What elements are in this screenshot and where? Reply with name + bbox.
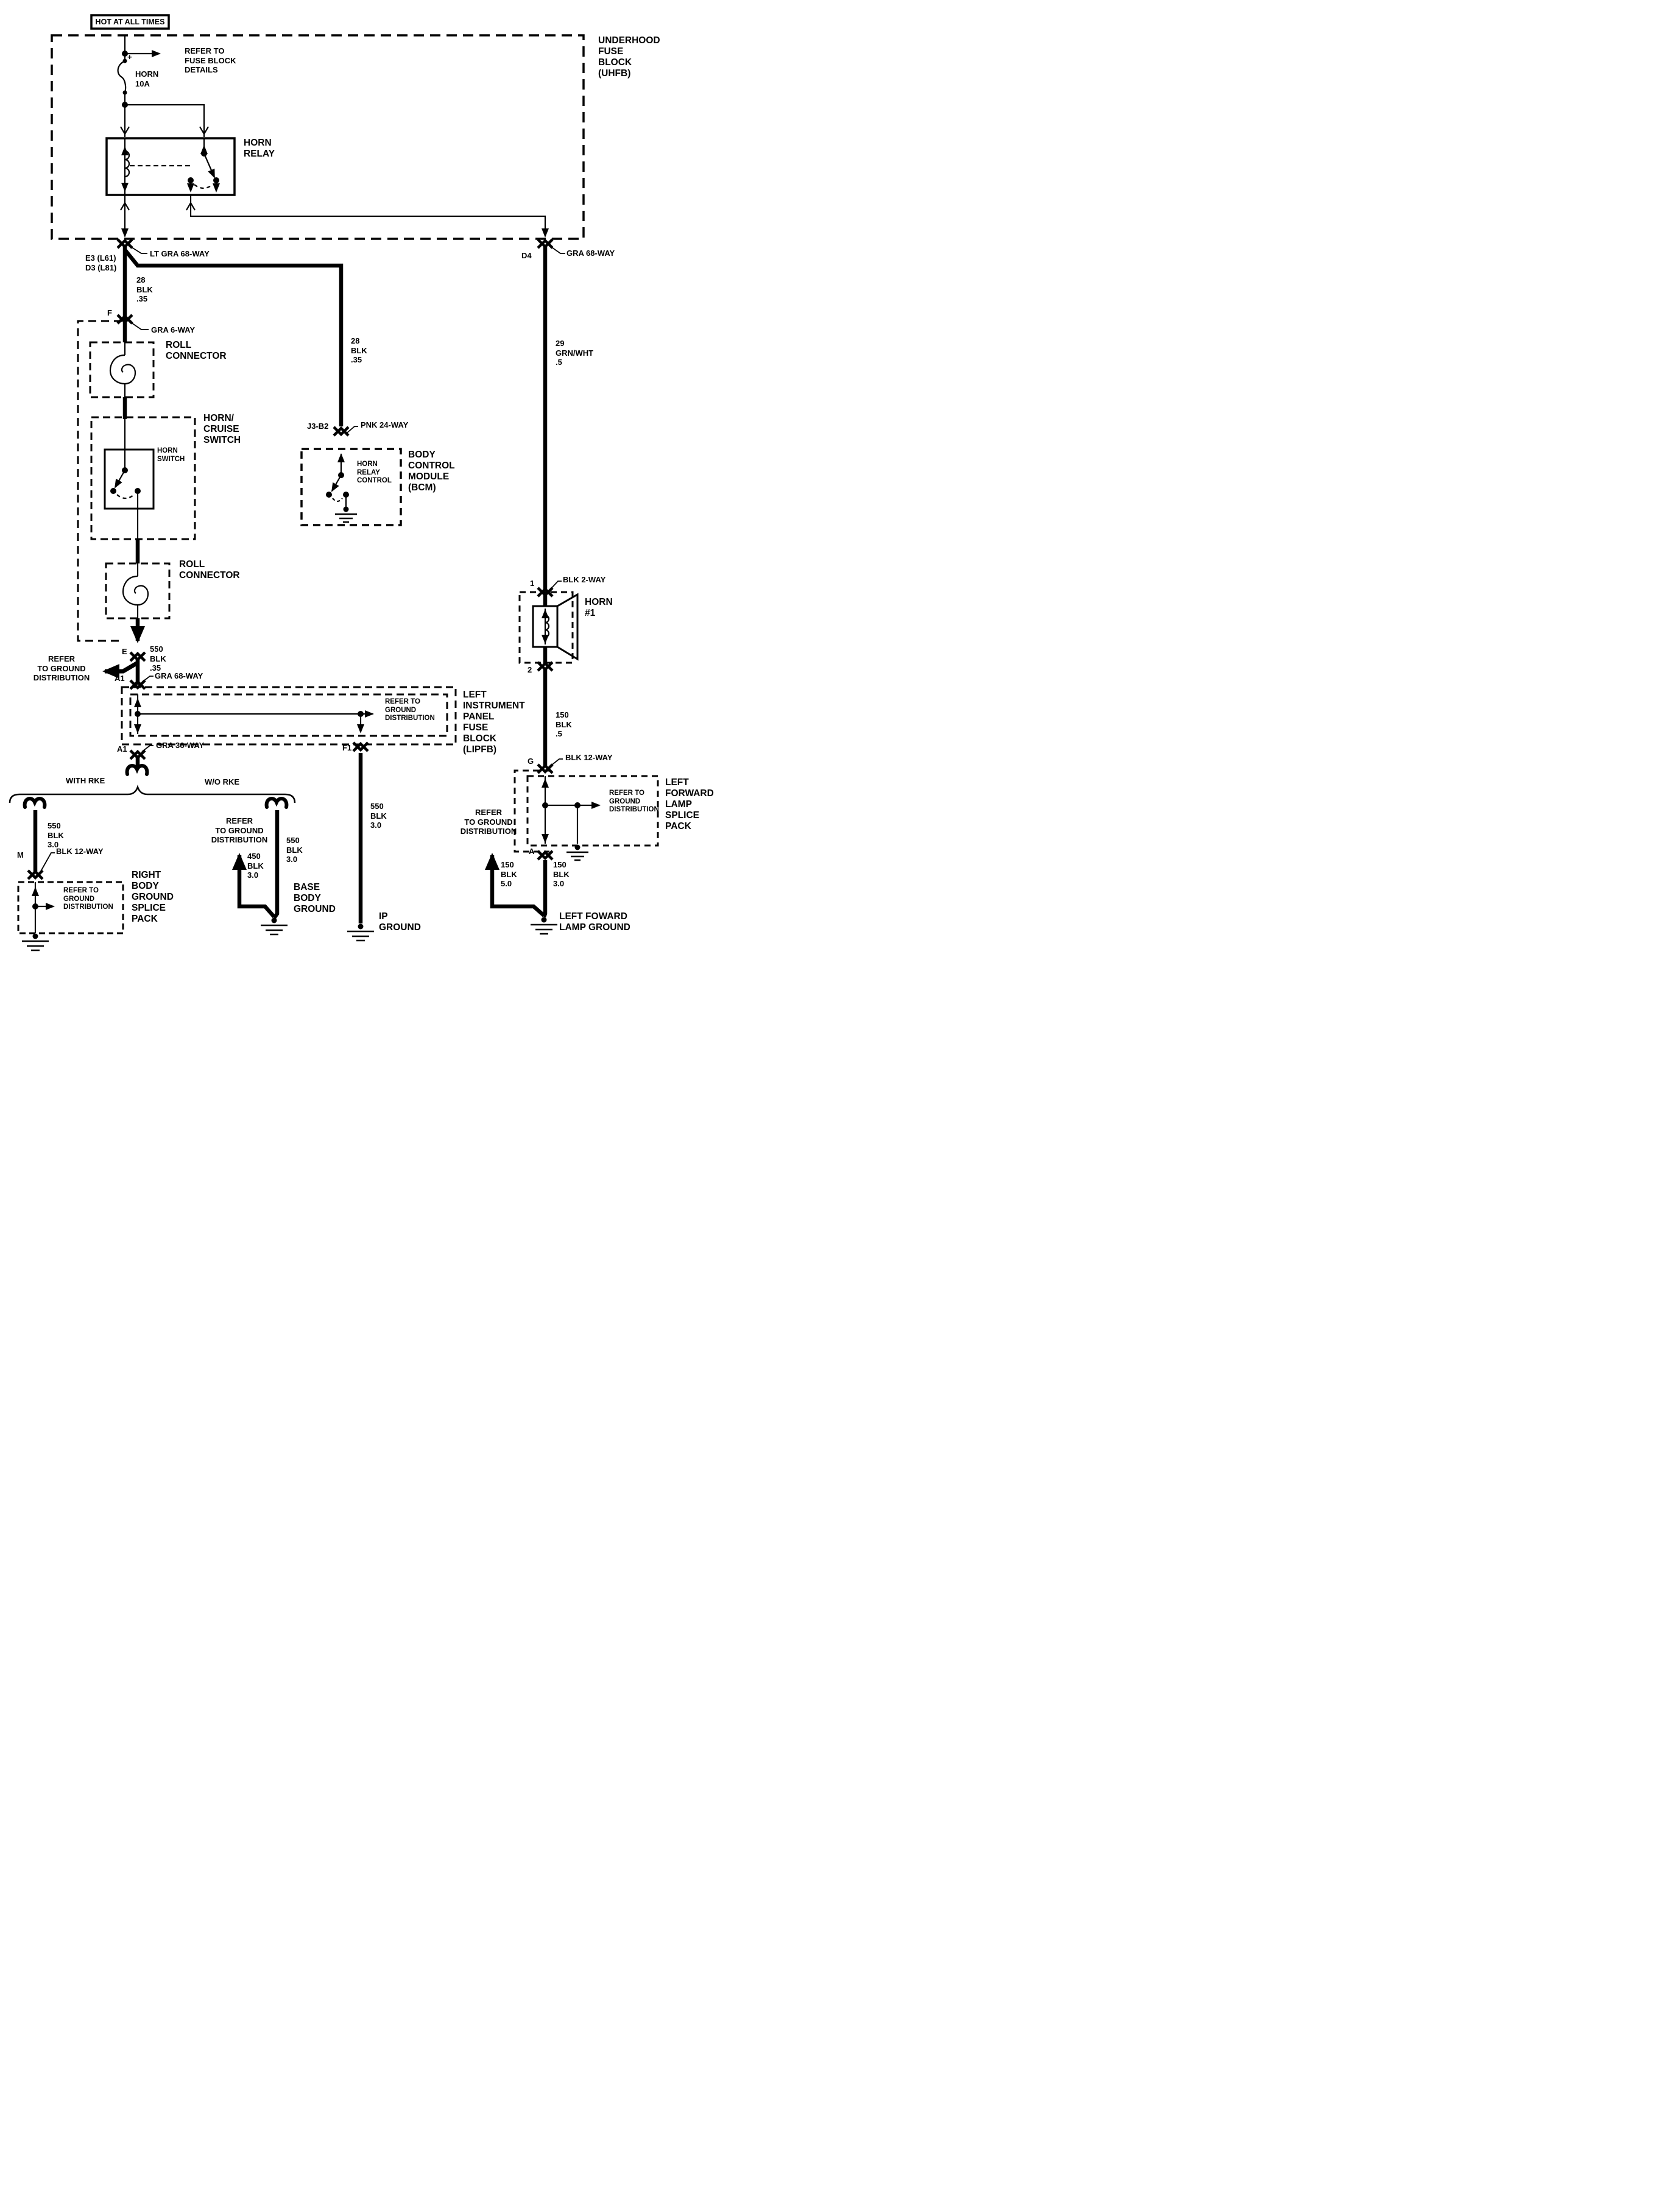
pin-e3-label: E3 (L61) D3 (L81) [85,253,116,272]
conn-blk-12way-right-label: BLK 12-WAY [565,753,613,763]
rbgsp-title: RIGHT BODY GROUND SPLICE PACK [132,870,174,925]
wire-28-blk-35-left-label: 28 BLK .35 [136,275,153,304]
roll-connector-top [90,342,154,397]
pin-f1-label: F1 [342,743,351,753]
wire-150-blk-30-label: 150 BLK 3.0 [553,860,570,889]
pin-d4-label: D4 [521,251,532,261]
steering-column-boundary [78,321,122,641]
conn-lt-gra-68way-label: LT GRA 68-WAY [150,249,210,259]
main-wires [105,246,341,768]
horn-relay-symbol [107,138,235,195]
conn-gra-68way-left-label: GRA 68-WAY [155,671,203,681]
ip-ground-wire [347,753,374,941]
wire-150-blk-50-label: 150 BLK 5.0 [501,860,517,889]
lipfb-refer-ground-label: REFER TO GROUND DISTRIBUTION [385,698,435,723]
base-refer-ground-label: REFER TO GROUND DISTRIBUTION [205,816,274,845]
pin-a-label: A [529,847,534,856]
wire-550-blk-35-label: 550 BLK .35 [150,644,166,673]
wiring-diagram-canvas: HOT AT ALL TIMES REFER TO FUSE BLOCK DET… [0,0,731,961]
uhfb-title: UNDERHOOD FUSE BLOCK (UHFB) [598,35,660,79]
horn-fuse-label: HORN 10A [135,69,158,88]
pin-m-label: M [17,850,24,860]
uhfb-dashed-box [52,35,584,239]
lflsp-refer-ground-label: REFER TO GROUND DISTRIBUTION [609,789,659,814]
conn-gra-68way-right-label: GRA 68-WAY [566,249,615,258]
hot-at-all-times-label: HOT AT ALL TIMES [91,18,169,27]
refer-ground-left-label: REFER TO GROUND DISTRIBUTION [27,654,96,683]
lflsp-title: LEFT FORWARD LAMP SPLICE PACK [665,777,714,832]
bcm-title: BODY CONTROL MODULE (BCM) [408,450,455,493]
wo-rke-label: W/O RKE [205,777,239,787]
pin-e-label: E [122,647,127,657]
pin-a1-top-label: A1 [115,674,125,683]
horn-cruise-switch-label: HORN/ CRUISE SWITCH [203,413,241,446]
wire-550-blk-30-ip-label: 550 BLK 3.0 [370,802,387,830]
horn-relay-label: HORN RELAY [244,138,275,160]
wire-450-blk-30-label: 450 BLK 3.0 [247,852,264,880]
wire-550-blk-30-mid-label: 550 BLK 3.0 [286,836,303,864]
roll-connector-bottom [106,563,169,618]
roll-connector-bottom-label: ROLL CONNECTOR [179,559,240,581]
left-forward-lamp-ground-title: LEFT FOWARD LAMP GROUND [559,911,630,933]
conn-blk-2way-label: BLK 2-WAY [563,575,605,585]
horn-1-title: HORN #1 [585,597,613,619]
conn-blk-12way-left-label: BLK 12-WAY [56,847,104,856]
pin-a1-bottom-label: A1 [117,744,127,754]
conn-pnk-24way-label: PNK 24-WAY [361,420,408,430]
relay-exit-wires [121,195,545,236]
lipfb-title: LEFT INSTRUMENT PANEL FUSE BLOCK (LIPFB) [463,690,525,755]
roll-connector-top-label: ROLL CONNECTOR [166,340,227,362]
base-body-ground-title: BASE BODY GROUND [294,882,336,915]
conn-gra-36way-label: GRA 36-WAY [156,741,204,750]
lamp-refer-ground-label: REFER TO GROUND DISTRIBUTION [454,808,523,836]
pin-2-label: 2 [528,665,532,675]
pin-j3-b2-label: J3-B2 [307,422,328,431]
wire-150-blk-5-label: 150 BLK .5 [556,710,572,739]
pin-f-label: F [107,308,112,318]
horn-cruise-switch [91,417,195,539]
refer-fuse-block-label: REFER TO FUSE BLOCK DETAILS [185,46,236,75]
wire-28-blk-35-bcm-label: 28 BLK .35 [351,336,367,365]
connector-f [118,315,149,330]
horn-switch-label: HORN SWITCH [157,447,185,464]
fuse-plus-label: + [127,52,132,62]
pin-g-label: G [528,757,534,766]
wire-29-grnwht-label: 29 GRN/WHT .5 [556,339,593,367]
conn-gra-6way-label: GRA 6-WAY [151,325,195,335]
with-rke-label: WITH RKE [66,776,105,786]
ip-ground-title: IP GROUND [379,911,421,933]
rbgsp-refer-ground-label: REFER TO GROUND DISTRIBUTION [63,887,113,912]
wire-550-blk-30-left-label: 550 BLK 3.0 [48,821,64,850]
horn-symbol [520,581,577,671]
pin-1-label: 1 [530,579,534,588]
horn-relay-control-label: HORN RELAY CONTROL [357,461,392,485]
